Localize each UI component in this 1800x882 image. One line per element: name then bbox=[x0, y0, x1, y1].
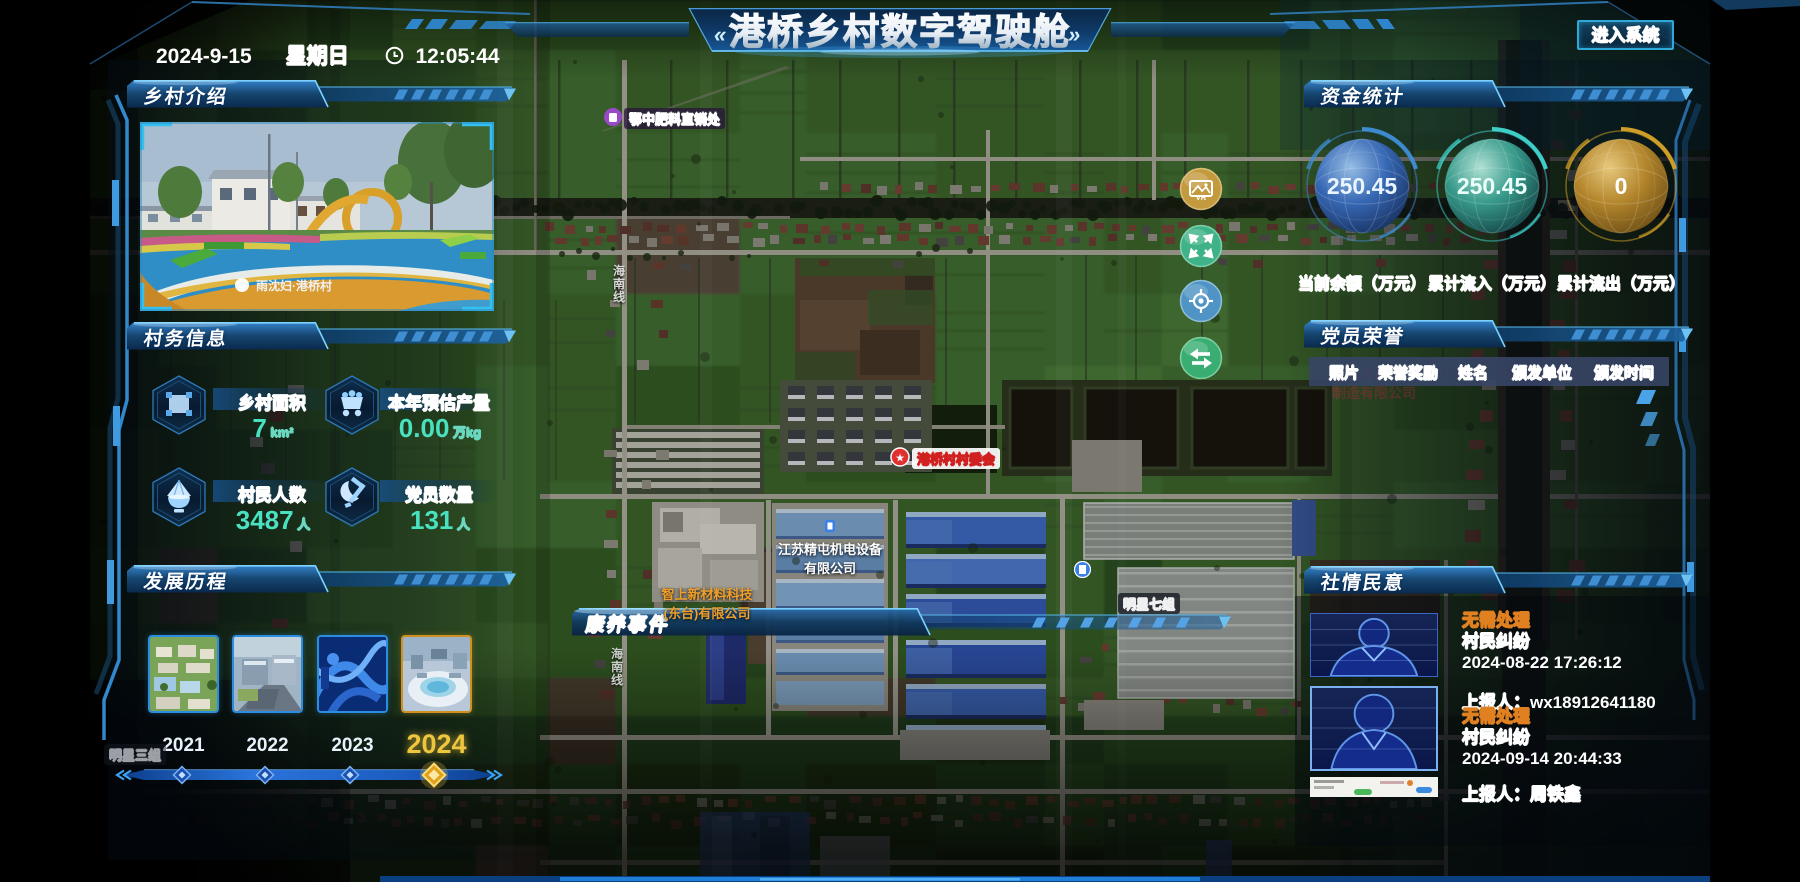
svg-text:0: 0 bbox=[1615, 173, 1628, 199]
svg-text:250.45: 250.45 bbox=[1457, 173, 1528, 199]
svg-text:港桥乡村数字驾驶舱: 港桥乡村数字驾驶舱 bbox=[729, 11, 1071, 52]
svg-text:250.45: 250.45 bbox=[1327, 173, 1398, 199]
svg-text:«: « bbox=[714, 22, 726, 47]
svg-text:»: » bbox=[1068, 22, 1080, 47]
svg-text:VR: VR bbox=[1196, 193, 1207, 202]
svg-text:★: ★ bbox=[895, 453, 905, 465]
